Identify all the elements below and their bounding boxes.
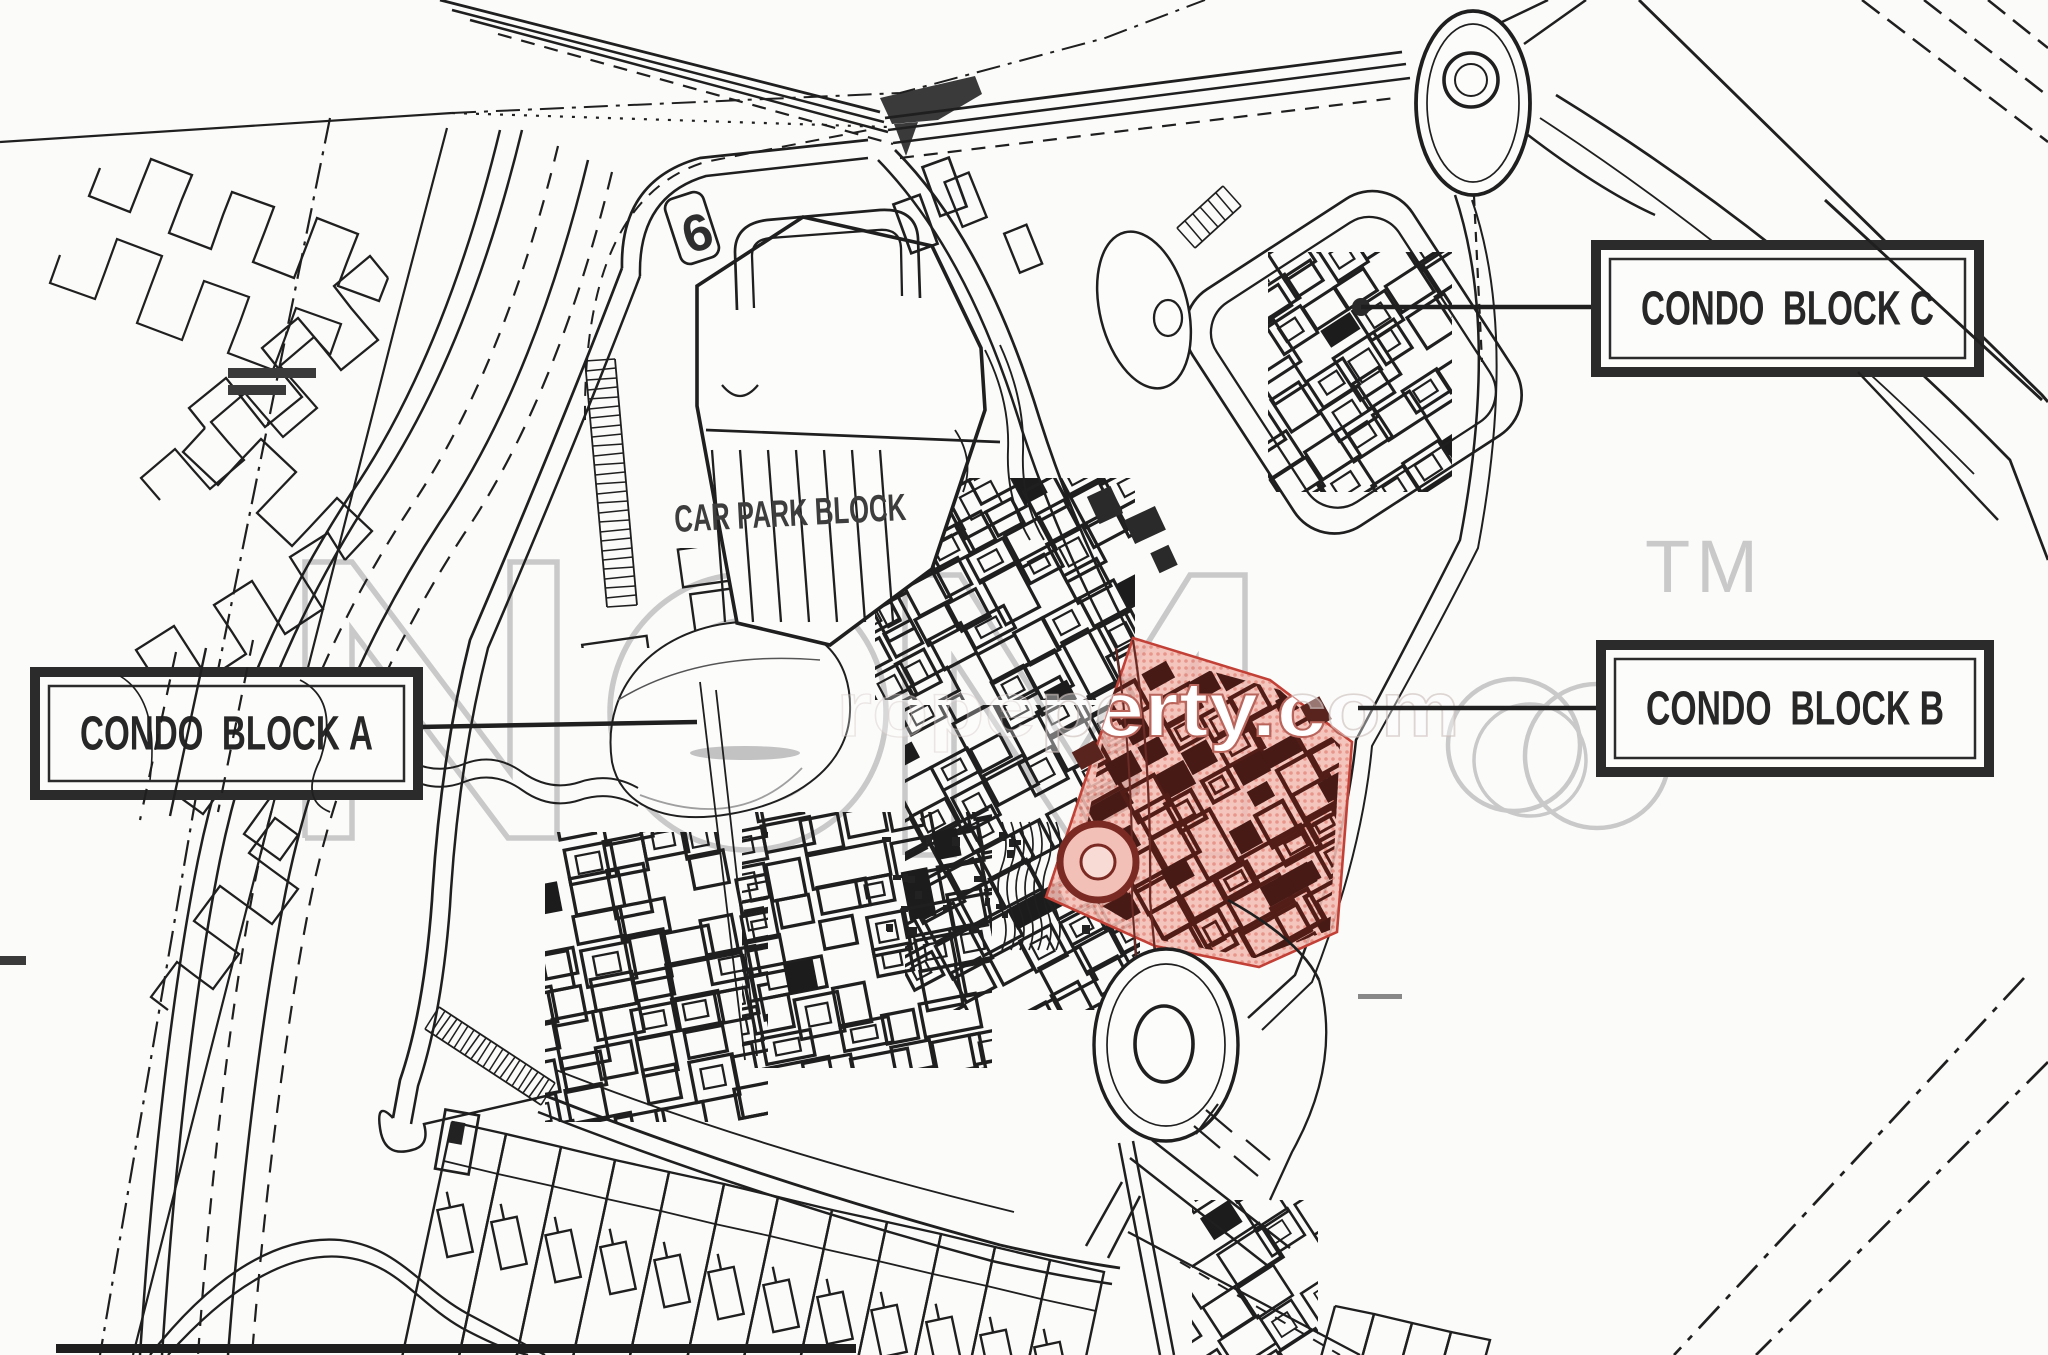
svg-text:rope: rope [836,665,1036,753]
svg-text:TM: TM [1645,525,1764,608]
svg-text:CONDO BLOCK A: CONDO BLOCK A [80,708,373,761]
svg-text:CONDO BLOCK B: CONDO BLOCK B [1646,683,1944,736]
svg-text:CONDO BLOCK C: CONDO BLOCK C [1641,283,1934,336]
